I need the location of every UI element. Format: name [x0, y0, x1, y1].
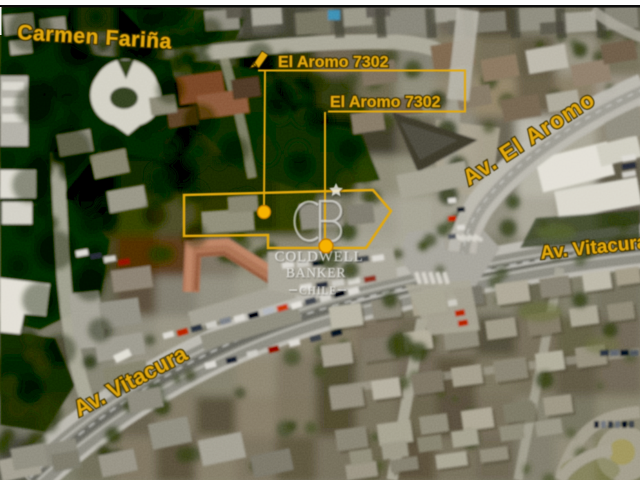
svg-text:El Aromo 7302: El Aromo 7302	[330, 94, 441, 111]
svg-text:CHILE: CHILE	[299, 285, 337, 297]
svg-text:BANKER: BANKER	[286, 265, 346, 280]
svg-text:COLDWELL: COLDWELL	[275, 249, 364, 265]
svg-text:El Aromo 7302: El Aromo 7302	[278, 54, 389, 71]
